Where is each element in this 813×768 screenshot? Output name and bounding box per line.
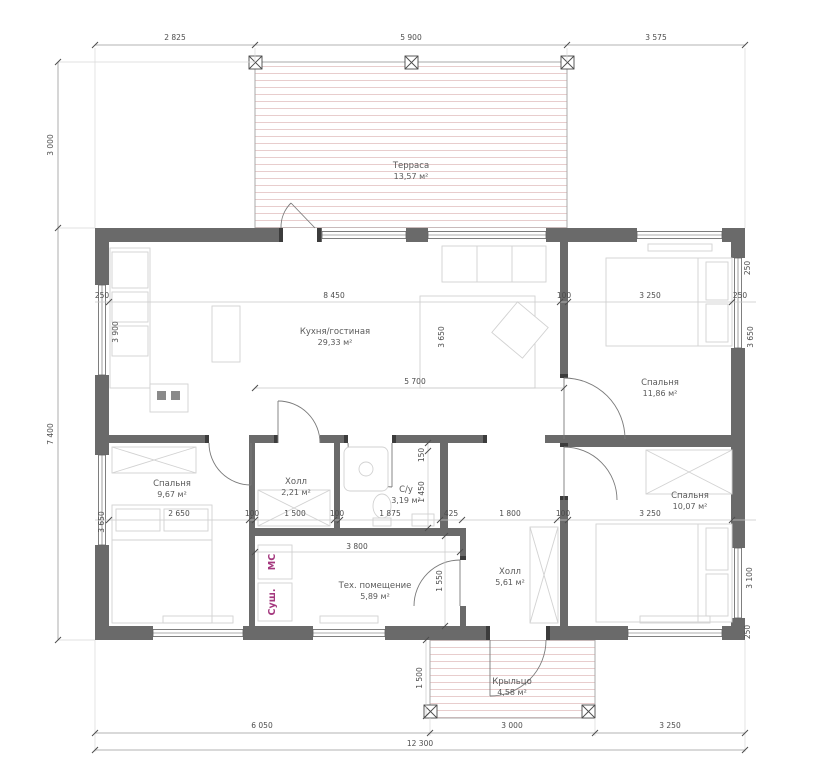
dim-row1-2: 100	[557, 291, 572, 300]
dim-row1-3: 3 250	[639, 291, 661, 300]
room-name-hall1: Холл	[285, 477, 307, 487]
wall-tech-right-b	[460, 606, 466, 626]
terrace-slab	[255, 62, 567, 228]
wall-h1-c	[392, 435, 487, 443]
room-name-tech: Тех. помещение	[338, 581, 412, 591]
wall-tech-right-a	[460, 528, 466, 560]
sofa	[442, 246, 546, 282]
dim-bottom-1: 3 000	[501, 721, 523, 730]
room-area-porch: 4,58 м²	[497, 688, 527, 697]
dim-bath-150: 150	[417, 448, 426, 463]
room-label-hall1: Холл 2,21 м²	[281, 477, 311, 497]
dim-row3-6: 1 800	[499, 509, 521, 518]
armchair	[492, 302, 548, 358]
bed-bedroom3	[596, 524, 732, 622]
room-area-bedroom1: 11,86 м²	[643, 389, 678, 398]
dim-row3-0: 2 650	[168, 509, 190, 518]
window-bedroom1-top	[637, 228, 722, 242]
dim-tech-1550: 1 550	[435, 570, 444, 592]
room-label-kitchen: Кухня/гостиная 29,33 м²	[300, 327, 370, 347]
washer-label: МС	[267, 554, 278, 570]
room-name-hall2: Холл	[499, 567, 521, 577]
furniture: МС Суш.	[110, 244, 732, 623]
wall-bedroom3-left	[560, 500, 568, 626]
door-hall1	[278, 401, 320, 443]
wall-bedroom1-bedroom3	[560, 435, 732, 447]
column-icon	[561, 56, 574, 69]
dim-v-3650-left: 3 650	[97, 511, 106, 533]
shower	[344, 447, 388, 491]
column-icon	[249, 56, 262, 69]
window-bedroom3-right	[731, 548, 745, 618]
room-area-hall1: 2,21 м²	[281, 488, 311, 497]
kitchen-counter	[110, 248, 150, 388]
room-label-bedroom2: Спальня 9,67 м²	[153, 479, 191, 499]
dim-v-3650-kitchen: 3 650	[437, 326, 446, 348]
dining-table	[212, 306, 240, 362]
opening-porch-door	[490, 626, 546, 640]
dim-5700: 5 700	[404, 377, 426, 386]
dryer-box: Суш.	[258, 583, 292, 621]
dim-v-3100: 3 100	[745, 567, 754, 589]
room-name-terrace: Терраса	[392, 161, 429, 171]
wardrobe-hall2	[530, 527, 558, 623]
dim-total-width: 12 300	[407, 739, 433, 748]
room-label-hall2: Холл 5,61 м²	[495, 567, 525, 587]
dim-tech-3800: 3 800	[346, 542, 368, 551]
dim-row3-5: 425	[444, 509, 459, 518]
bed-bedroom2	[112, 505, 212, 623]
room-area-tech: 5,89 м²	[360, 592, 390, 601]
dim-row3-1: 100	[245, 509, 260, 518]
room-name-bedroom2: Спальня	[153, 479, 191, 489]
dim-top-0: 2 825	[164, 33, 186, 42]
dim-row3-7: 100	[556, 509, 571, 518]
dim-v-250-bottomright: 250	[743, 625, 752, 640]
room-area-terrace: 13,57 м²	[394, 172, 429, 181]
room-name-bedroom3: Спальня	[671, 491, 709, 501]
wall-bedroom2-top	[109, 435, 209, 443]
room-area-bath: 3,19 м²	[391, 496, 421, 505]
dim-top-1: 5 900	[400, 33, 422, 42]
window-kitchen-1	[322, 228, 406, 242]
window-tech-bottom	[313, 626, 385, 640]
dim-row3-2: 1 500	[284, 509, 306, 518]
wall-tech-top	[255, 528, 460, 536]
wall-kitchen-bedroom1	[560, 242, 568, 378]
wall-h1-b	[320, 435, 348, 443]
room-label-tech: Тех. помещение 5,89 м²	[338, 581, 412, 601]
dim-v-3650-right: 3 650	[746, 326, 755, 348]
terrace-deck	[255, 62, 567, 228]
kitchen-stove	[150, 384, 188, 412]
room-area-kitchen: 29,33 м²	[318, 338, 353, 347]
wall-bedroom2-right	[249, 435, 255, 626]
window-bedroom2-bottom	[153, 626, 243, 640]
dim-bottom-2: 3 250	[659, 721, 681, 730]
dim-left-0: 3 000	[46, 134, 55, 156]
dim-row1-4: 250	[733, 291, 748, 300]
dim-left-1: 7 400	[46, 423, 55, 445]
room-area-bedroom2: 9,67 м²	[157, 490, 187, 499]
washer-box: МС	[258, 545, 292, 579]
floor-plan-canvas: МС Суш.	[0, 0, 813, 768]
dim-bottom-0: 6 050	[251, 721, 273, 730]
dim-porch-1500: 1 500	[415, 667, 424, 689]
room-name-bath: С/у	[399, 485, 413, 495]
dim-row3-4: 1 875	[379, 509, 401, 518]
room-name-bedroom1: Спальня	[641, 378, 679, 388]
dim-top-2: 3 575	[645, 33, 667, 42]
wardrobe-bedroom2	[112, 447, 196, 473]
door-bedroom1	[564, 378, 625, 439]
column-icon	[582, 705, 595, 718]
radiator	[320, 616, 378, 623]
dim-row1-1: 8 450	[323, 291, 345, 300]
door-bedroom3	[564, 447, 617, 500]
room-name-porch: Крыльцо	[492, 677, 532, 687]
window-kitchen-2	[428, 228, 546, 242]
door-bedroom2	[209, 443, 251, 485]
column-icon	[405, 56, 418, 69]
radiator	[648, 244, 712, 251]
room-name-kitchen: Кухня/гостиная	[300, 327, 370, 337]
wall-h1-d	[545, 435, 560, 443]
room-area-hall2: 5,61 м²	[495, 578, 525, 587]
floor-plan-page: МС Суш.	[0, 0, 813, 768]
dim-row3-3: 100	[330, 509, 345, 518]
window-bedroom3-bottom	[628, 626, 722, 640]
dryer-label: Суш.	[267, 589, 278, 616]
room-label-bedroom3: Спальня 10,07 м²	[671, 491, 709, 511]
dim-v-250-topright: 250	[743, 261, 752, 276]
opening-terrace-door	[283, 228, 317, 242]
room-area-bedroom3: 10,07 м²	[673, 502, 708, 511]
dim-row1-0: 250	[95, 291, 110, 300]
dim-row3-8: 3 250	[639, 509, 661, 518]
room-label-bedroom1: Спальня 11,86 м²	[641, 378, 679, 398]
dim-v-3900: 3 900	[111, 321, 120, 343]
wardrobe-bedroom3	[646, 450, 732, 494]
